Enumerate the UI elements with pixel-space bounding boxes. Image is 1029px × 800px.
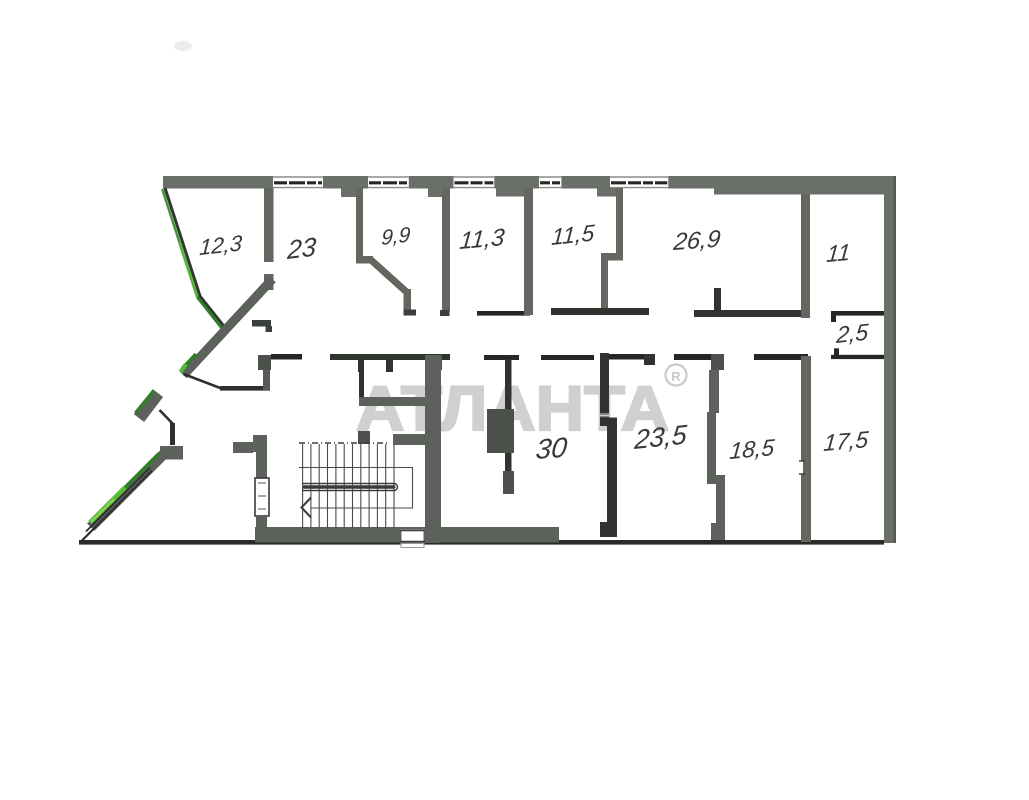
svg-text:23,5: 23,5 <box>633 418 689 455</box>
svg-text:11: 11 <box>826 239 852 267</box>
svg-text:12,3: 12,3 <box>199 230 244 260</box>
svg-text:23: 23 <box>286 231 318 265</box>
svg-text:18,5: 18,5 <box>729 434 776 464</box>
svg-text:26,9: 26,9 <box>671 226 721 256</box>
svg-text:17,5: 17,5 <box>823 426 870 456</box>
svg-text:11,5: 11,5 <box>551 219 596 250</box>
svg-text:30: 30 <box>534 431 569 465</box>
svg-text:R: R <box>671 369 681 384</box>
svg-text:11,3: 11,3 <box>458 224 506 255</box>
svg-text:2,5: 2,5 <box>835 319 870 349</box>
svg-text:9,9: 9,9 <box>381 223 411 250</box>
